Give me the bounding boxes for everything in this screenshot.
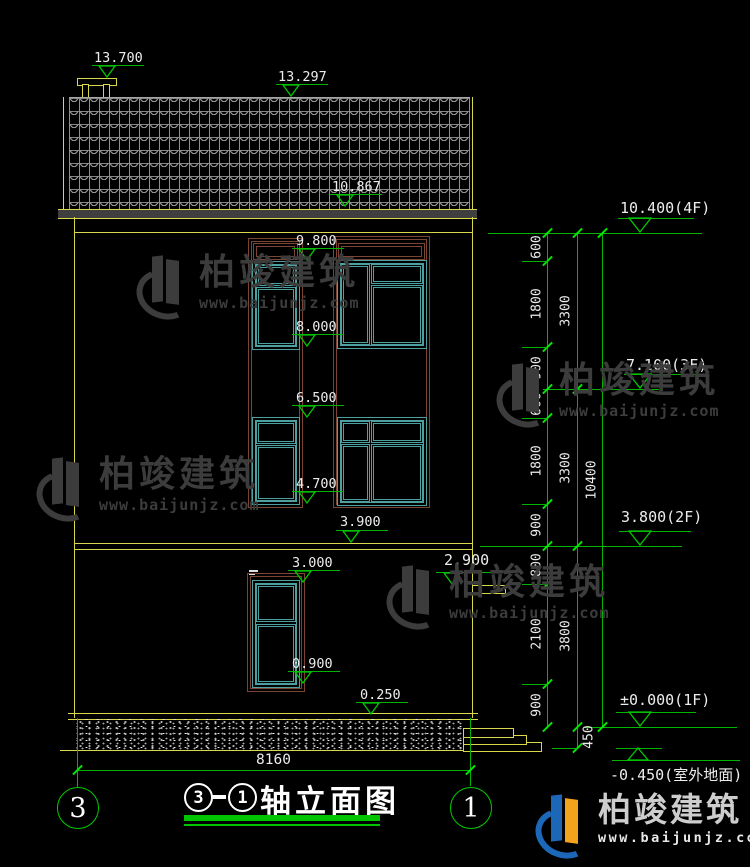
- foundation-hatch: [76, 719, 466, 751]
- title-circle-number: 1: [237, 788, 247, 808]
- elevation-label: 13.297: [278, 69, 327, 85]
- axis-bubble-1: 1: [450, 787, 492, 829]
- axis-number: 1: [462, 793, 479, 824]
- window-pane: [256, 624, 296, 684]
- dim-label: 900: [530, 513, 545, 536]
- watermark: 柏竣建筑 www.baijunjz.com: [136, 254, 360, 314]
- floor-level-label: ±0.000(1F): [620, 691, 710, 709]
- watermark-logo-icon: [496, 362, 550, 422]
- dim-stub-line: [552, 748, 577, 749]
- wall-top-band: [74, 232, 473, 233]
- axis-number: 3: [69, 793, 86, 824]
- ground-line: [60, 750, 475, 751]
- elevation-triangle-icon: [342, 530, 360, 543]
- elevation-label: 10.867: [332, 179, 381, 195]
- extension-line: [470, 718, 471, 786]
- level-line-2f: [480, 546, 682, 547]
- watermark-url: www.baijunjz.com: [99, 496, 260, 514]
- tiny-annotation: [249, 574, 255, 575]
- elevation-label: 13.700: [94, 50, 143, 66]
- extension-line: [77, 718, 78, 788]
- watermark-logo-icon: [36, 456, 90, 516]
- floor-level-label: -0.450(室外地面): [610, 764, 742, 785]
- window-pane: [256, 421, 296, 444]
- level-line-4f: [488, 233, 702, 234]
- elevation-triangle-icon: [627, 747, 649, 761]
- dim-stub-line: [522, 504, 547, 505]
- watermark-brand: 柏竣建筑: [449, 564, 610, 602]
- elevation-triangle-icon: [628, 711, 652, 727]
- dimension-chain-middle: [577, 233, 578, 748]
- dimension-chain-outer: [602, 233, 603, 727]
- title-underline-thin: [184, 824, 380, 826]
- dim-stub-line: [522, 684, 547, 685]
- elevation-triangle-icon: [628, 530, 652, 546]
- elevation-label: 6.500: [296, 390, 337, 406]
- title-dash: [212, 795, 226, 799]
- tiny-annotation: [249, 570, 258, 572]
- dim-label: 3300: [559, 452, 574, 483]
- watermark-brand: 柏竣建筑: [559, 362, 720, 400]
- elevation-label: 0.250: [360, 687, 401, 703]
- roof-tiles: [69, 97, 470, 210]
- watermark-logo-icon: [136, 254, 190, 314]
- elevation-triangle-icon: [336, 194, 354, 207]
- dimension-chain-inner: [547, 233, 548, 727]
- elevation-drawing: 柏竣建筑 www.baijunjz.com 柏竣建筑 www.baijunjz.…: [0, 0, 750, 867]
- dim-label: 900: [530, 693, 545, 716]
- elevation-triangle-icon: [294, 570, 312, 583]
- watermark-logo-icon: [386, 564, 440, 624]
- window-pane: [371, 264, 423, 284]
- watermark: 柏竣建筑 www.baijunjz.com: [496, 362, 720, 422]
- window-pane: [256, 584, 296, 622]
- dim-label: 1800: [530, 288, 545, 319]
- elevation-triangle-icon: [282, 84, 300, 97]
- level-line-1f: [585, 727, 737, 728]
- floor-level-label: 10.400(4F): [620, 199, 710, 217]
- dim-stub-line: [522, 261, 547, 262]
- dim-label: 600: [530, 235, 545, 258]
- watermark-url: www.baijunjz.com: [199, 294, 360, 312]
- window-pane: [341, 444, 370, 502]
- dim-label: 1800: [530, 445, 545, 476]
- watermark: 柏竣建筑 www.baijunjz.com: [36, 456, 260, 516]
- window-pane: [371, 285, 423, 345]
- roof-edge-left: [63, 97, 64, 209]
- brand-logo: 柏竣建筑 www.baijunjz.com: [535, 793, 750, 853]
- elevation-label: 9.800: [296, 233, 337, 249]
- elevation-triangle-icon: [298, 491, 316, 504]
- title-underline-thick: [184, 815, 380, 821]
- elevation-triangle-icon: [628, 217, 652, 233]
- elevation-triangle-icon: [294, 671, 312, 684]
- title-circle-1: 1: [228, 783, 257, 812]
- window-pane: [371, 444, 423, 502]
- floor-level-label: 3.800(2F): [621, 508, 702, 526]
- watermark-brand: 柏竣建筑: [99, 456, 260, 494]
- title-circle-3: 3: [184, 783, 213, 812]
- watermark-url: www.baijunjz.com: [449, 604, 610, 622]
- elevation-label: 4.700: [296, 476, 337, 492]
- elevation-label: 0.900: [292, 656, 333, 672]
- dimension-line-bottom: [77, 770, 470, 771]
- window-pane: [256, 445, 296, 501]
- elevation-label: 8.000: [296, 319, 337, 335]
- floor-band: [74, 543, 473, 550]
- dim-label: 450: [582, 725, 597, 748]
- elevation-label: 3.000: [292, 555, 333, 571]
- elevation-label: 3.900: [340, 514, 381, 530]
- elevation-triangle-icon: [362, 702, 380, 715]
- elevation-triangle-icon: [298, 334, 316, 347]
- roof-edge-right: [472, 97, 473, 209]
- dim-label: 3300: [559, 295, 574, 326]
- watermark-url: www.baijunjz.com: [559, 402, 720, 420]
- dim-label: 3800: [559, 620, 574, 651]
- elevation-triangle-icon: [98, 65, 116, 78]
- window-pane: [371, 421, 423, 443]
- watermark: 柏竣建筑 www.baijunjz.com: [386, 564, 610, 624]
- brand-logo-icon: [535, 793, 589, 853]
- title-circle-number: 3: [193, 788, 203, 808]
- window-pane: [341, 421, 370, 443]
- eave-band: [58, 209, 477, 219]
- wall-right: [472, 217, 473, 718]
- dim-label: 10400: [585, 460, 600, 499]
- dim-stub-line: [522, 347, 547, 348]
- dim-label: 8160: [256, 752, 291, 768]
- axis-bubble-3: 3: [57, 787, 99, 829]
- watermark-brand: 柏竣建筑: [199, 254, 360, 292]
- elevation-triangle-icon: [298, 405, 316, 418]
- brand-url: www.baijunjz.com: [598, 830, 750, 846]
- brand-name: 柏竣建筑: [598, 793, 750, 828]
